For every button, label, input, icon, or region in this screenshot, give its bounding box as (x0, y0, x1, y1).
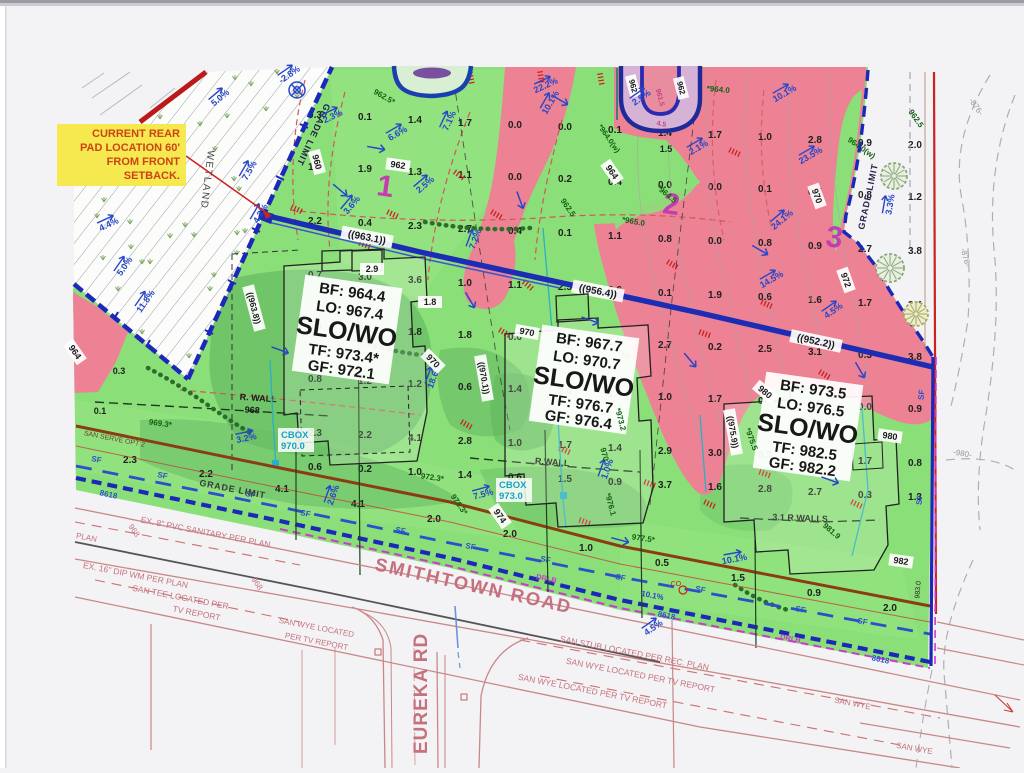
svg-text:CBOX: CBOX (281, 430, 309, 441)
svg-text:1.6: 1.6 (708, 482, 722, 493)
svg-text:0.1: 0.1 (358, 112, 372, 123)
svg-text:0.1: 0.1 (94, 406, 107, 416)
svg-text:1.1: 1.1 (508, 280, 522, 291)
svg-text:0.9: 0.9 (808, 241, 822, 252)
svg-text:0.3: 0.3 (113, 366, 126, 376)
svg-text:982: 982 (893, 555, 909, 567)
svg-text:CURRENT REAR: CURRENT REAR (92, 128, 180, 140)
svg-text:FROM FRONT: FROM FRONT (107, 156, 181, 168)
svg-text:0.8: 0.8 (908, 458, 922, 469)
svg-text:SF: SF (915, 494, 925, 505)
svg-text:2.5: 2.5 (758, 344, 772, 355)
svg-text:0.0: 0.0 (708, 236, 722, 247)
svg-text:980: 980 (882, 430, 898, 442)
svg-text:1.0: 1.0 (658, 392, 672, 403)
svg-text:0.9: 0.9 (807, 588, 821, 599)
svg-text:0.8: 0.8 (658, 234, 672, 245)
svg-text:1.6: 1.6 (808, 295, 822, 306)
svg-text:0.6: 0.6 (308, 462, 322, 473)
svg-text:1.4: 1.4 (408, 115, 422, 126)
svg-text:962: 962 (390, 159, 406, 171)
svg-text:970.0: 970.0 (281, 441, 305, 452)
svg-text:1.9: 1.9 (358, 164, 372, 175)
svg-text:1.3: 1.3 (408, 167, 422, 178)
svg-text:2.9: 2.9 (366, 264, 379, 274)
svg-text:2.7: 2.7 (658, 340, 672, 351)
svg-text:3.7: 3.7 (658, 480, 672, 491)
svg-text:0.0: 0.0 (508, 172, 522, 183)
svg-text:SF: SF (917, 389, 927, 400)
svg-text:0.8: 0.8 (758, 238, 772, 249)
svg-text:2.0: 2.0 (883, 603, 897, 614)
svg-text:0.4: 0.4 (358, 218, 372, 229)
svg-text:3.0: 3.0 (708, 448, 722, 459)
svg-text:968: 968 (244, 404, 260, 415)
svg-text:CBOX: CBOX (499, 480, 527, 491)
svg-text:1.5: 1.5 (660, 144, 673, 154)
svg-text:1.5: 1.5 (731, 573, 745, 584)
svg-text:2.3: 2.3 (123, 455, 137, 466)
svg-text:2.3: 2.3 (408, 221, 422, 232)
svg-text:0.5: 0.5 (655, 558, 669, 569)
svg-text:0.2: 0.2 (358, 464, 372, 475)
svg-text:SETBACK.: SETBACK. (124, 170, 180, 182)
svg-text:0.0: 0.0 (508, 120, 522, 131)
svg-text:1.0: 1.0 (458, 278, 472, 289)
svg-text:0.1: 0.1 (558, 228, 572, 239)
svg-text:0.2: 0.2 (558, 174, 572, 185)
svg-text:973.0: 973.0 (499, 491, 523, 502)
svg-text:EUREKA RD: EUREKA RD (411, 633, 432, 754)
svg-text:1.8: 1.8 (424, 297, 437, 307)
svg-text:0.1: 0.1 (658, 288, 672, 299)
svg-text:0.6: 0.6 (758, 292, 772, 303)
svg-text:0.2: 0.2 (708, 342, 722, 353)
svg-text:0.9: 0.9 (908, 404, 922, 415)
svg-text:1.7: 1.7 (858, 298, 872, 309)
svg-text:PAD LOCATION 60': PAD LOCATION 60' (80, 142, 180, 154)
svg-text:3.1: 3.1 (808, 347, 822, 358)
svg-text:1.0: 1.0 (758, 132, 772, 143)
svg-text:1.8: 1.8 (458, 330, 472, 341)
svg-text:2.9: 2.9 (658, 446, 672, 457)
svg-text:0.0: 0.0 (558, 122, 572, 133)
svg-text:1.1: 1.1 (608, 231, 622, 242)
svg-text:2.8: 2.8 (458, 436, 472, 447)
svg-text:1.7: 1.7 (708, 130, 722, 141)
svg-text:1.4: 1.4 (458, 470, 472, 481)
svg-text:1.0: 1.0 (579, 543, 593, 554)
svg-text:2.8: 2.8 (808, 135, 822, 146)
svg-text:1.9: 1.9 (708, 290, 722, 301)
svg-text:3.8: 3.8 (908, 246, 922, 257)
svg-text:CO: CO (671, 581, 682, 588)
svg-text:0.6: 0.6 (458, 382, 472, 393)
